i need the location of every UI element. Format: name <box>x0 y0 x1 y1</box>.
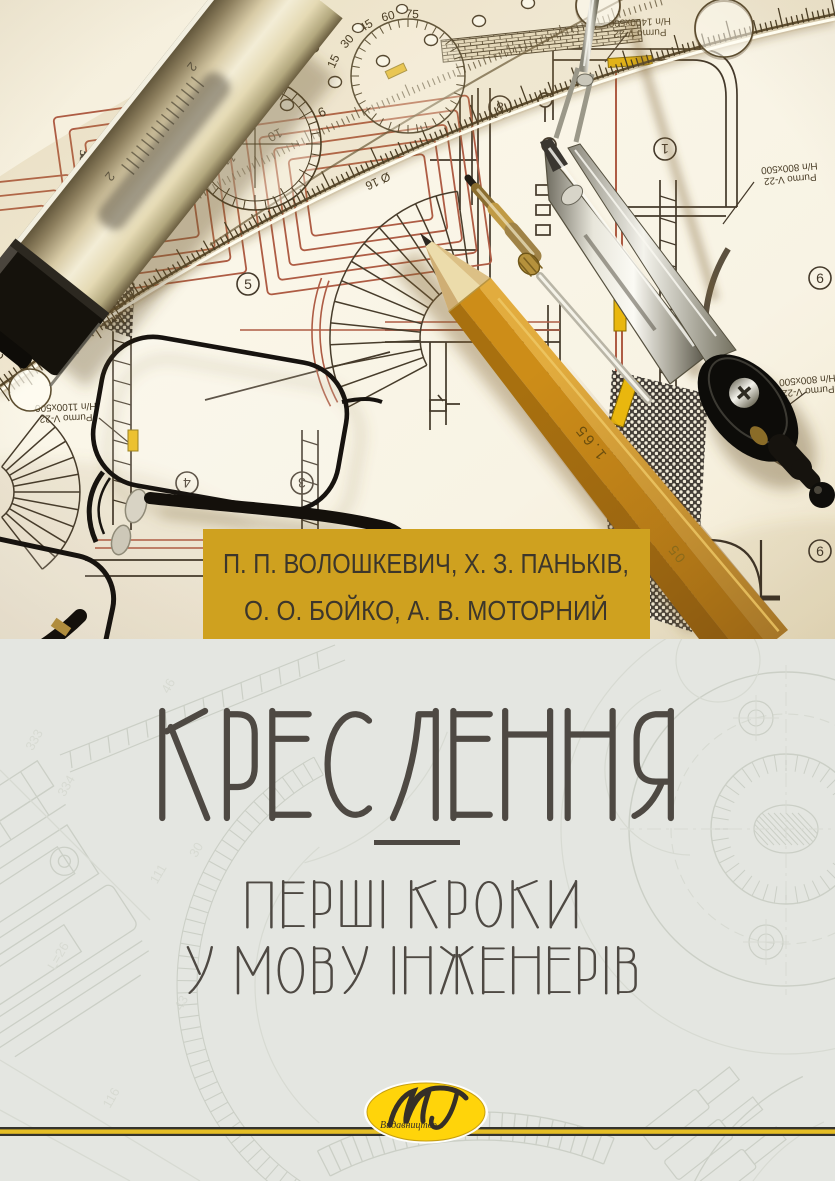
svg-text:5: 5 <box>244 276 252 292</box>
svg-text:6: 6 <box>816 270 824 286</box>
svg-text:П. П. ВОЛОШКЕВИЧ, Х. З. ПАНЬКІ: П. П. ВОЛОШКЕВИЧ, Х. З. ПАНЬКІВ, <box>223 548 629 579</box>
svg-text:Видавництво: Видавництво <box>380 1120 437 1131</box>
svg-text:О. О. БОЙКО, А. В. МОТОРНИЙ: О. О. БОЙКО, А. В. МОТОРНИЙ <box>244 595 608 626</box>
svg-text:6: 6 <box>816 543 824 559</box>
